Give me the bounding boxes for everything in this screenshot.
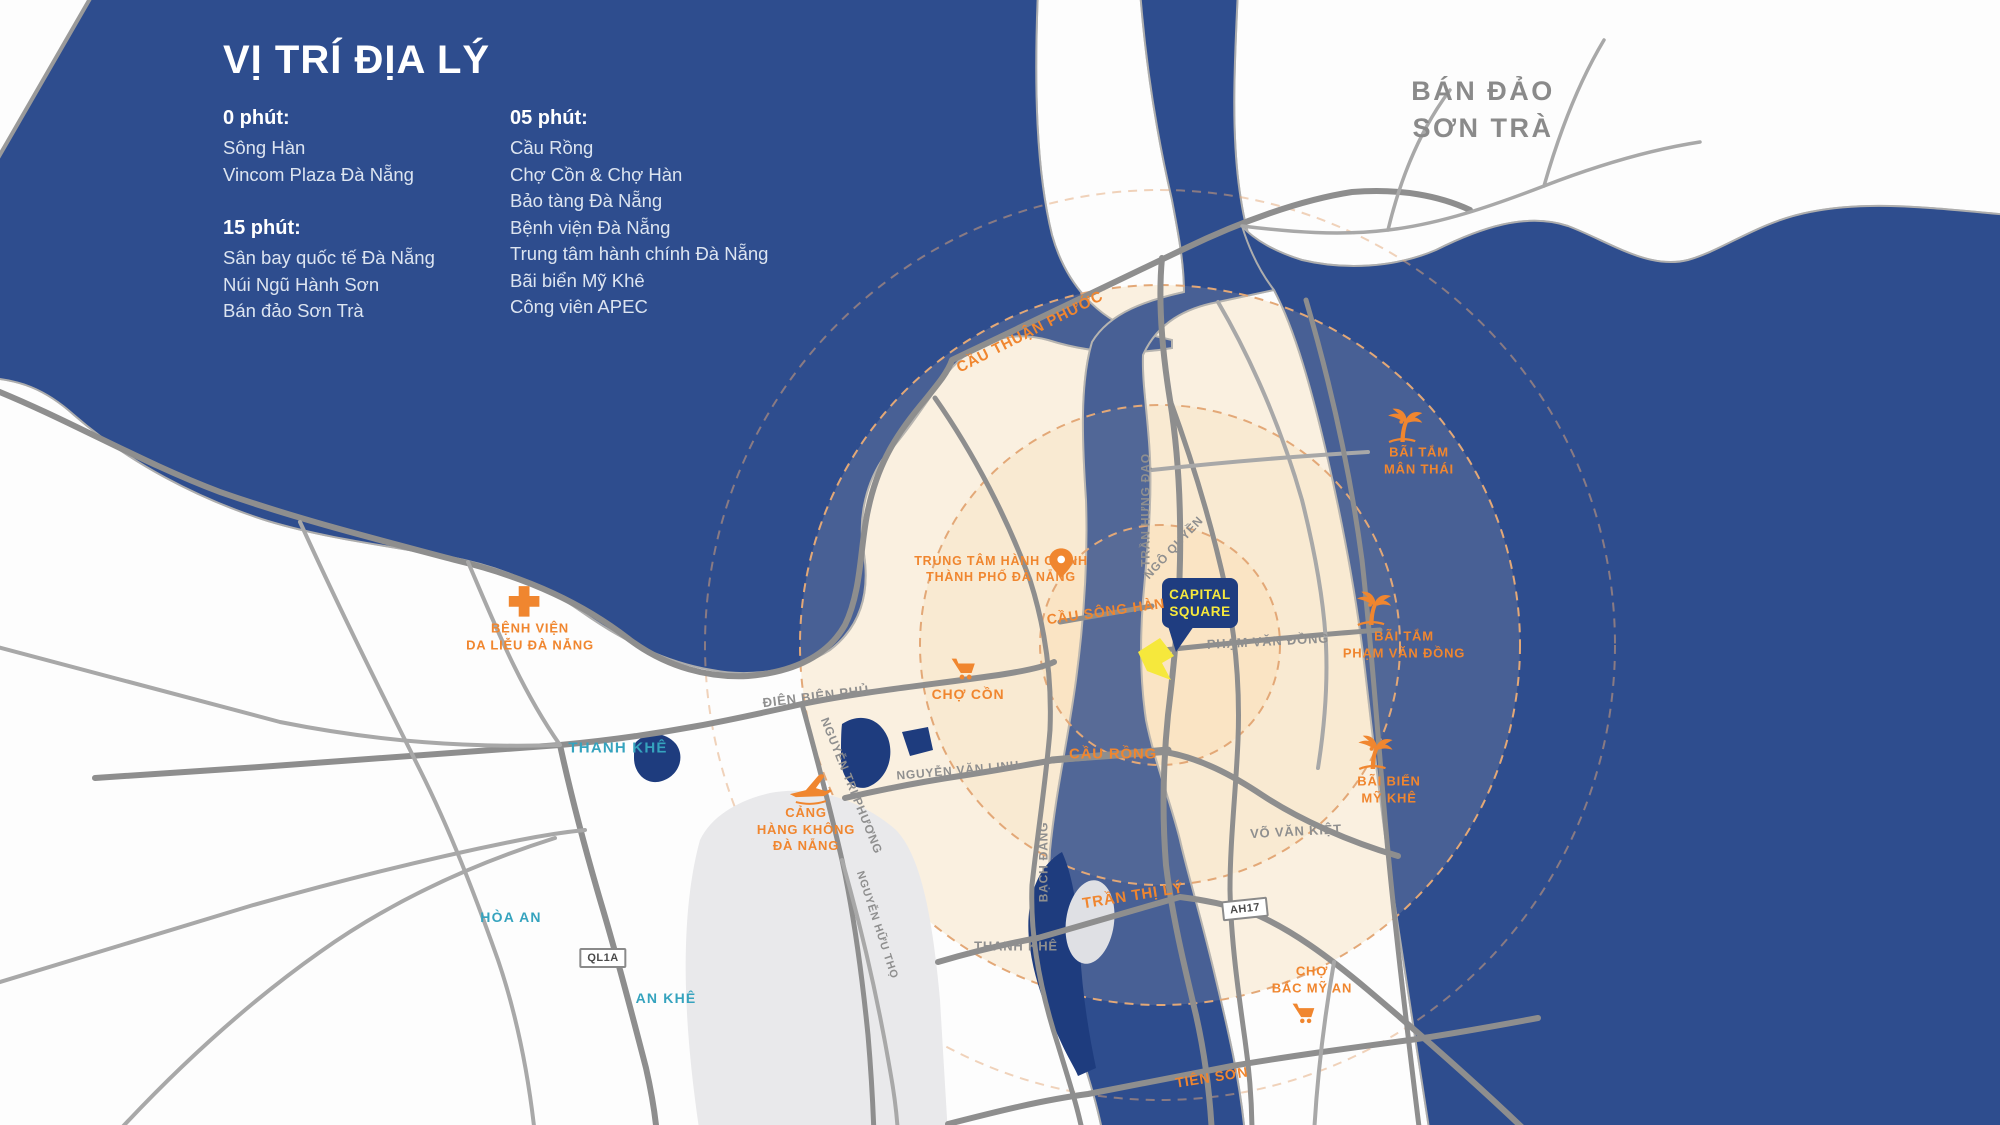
thanh-khe-south-label: THANH KHÊ — [974, 939, 1058, 956]
cart-icon — [948, 653, 980, 685]
info-column: 05 phút:Cầu RồngChợ Cồn & Chợ HànBảo tàn… — [510, 105, 840, 352]
info-group-heading: 05 phút: — [510, 105, 840, 132]
cho-con-label: CHỢ CỒN — [932, 686, 1005, 704]
info-item: Bảo tàng Đà Nẵng — [510, 188, 840, 215]
son-tra-peninsula-label: BÁN ĐẢO SƠN TRÀ — [1411, 73, 1555, 147]
info-columns: 0 phút:Sông HànVincom Plaza Đà Nẵng15 ph… — [223, 105, 823, 352]
info-item: Chợ Cồn & Chợ Hàn — [510, 162, 840, 189]
info-item: Bán đảo Sơn Trà — [223, 298, 478, 325]
hoa-an-label: HÒA AN — [480, 909, 541, 927]
info-item: Núi Ngũ Hành Sơn — [223, 272, 478, 299]
thanh-khe-west-label: THANH KHÊ — [568, 738, 667, 757]
plane-icon — [786, 764, 834, 812]
bai-tam-man-thai-label: BÃI TẮM MÂN THÁI — [1384, 444, 1454, 477]
info-group: 05 phút:Cầu RồngChợ Cồn & Chợ HànBảo tàn… — [510, 105, 840, 321]
info-item: Công viên APEC — [510, 294, 840, 321]
bai-bien-my-khe-label: BÃI BIỂN MỸ KHÊ — [1357, 773, 1420, 806]
location-map-page: VỊ TRÍ ĐỊA LÝ 0 phút:Sông HànVincom Plaz… — [0, 0, 2000, 1125]
palm-icon — [1351, 587, 1393, 629]
info-item: Sông Hàn — [223, 135, 478, 162]
info-group-heading: 0 phút: — [223, 105, 478, 132]
info-item: Sân bay quốc tế Đà Nẵng — [223, 245, 478, 272]
bach-dang-road-label: BẠCH ĐẰNG — [1036, 822, 1051, 903]
an-khe-label: AN KHÊ — [636, 990, 697, 1008]
palm-icon — [1352, 731, 1394, 773]
bai-tam-pham-van-dong-label: BÃI TẮM PHẠM VĂN ĐỒNG — [1343, 628, 1465, 661]
capital-square-marker: CAPITAL SQUARE — [1162, 578, 1238, 628]
info-item: Trung tâm hành chính Đà Nẵng — [510, 241, 840, 268]
info-item: Bãi biển Mỹ Khê — [510, 268, 840, 295]
admin-center-label: TRUNG TÂM HÀNH CHÍNH THÀNH PHỐ ĐÀ NẴNG — [914, 553, 1088, 585]
cho-bac-my-an-label: CHỢ BẮC MỸ AN — [1272, 963, 1352, 996]
info-group-heading: 15 phút: — [223, 215, 478, 242]
page-title: VỊ TRÍ ĐỊA LÝ — [223, 38, 823, 83]
project-name-line2: SQUARE — [1169, 603, 1230, 620]
project-name-line1: CAPITAL — [1169, 586, 1231, 603]
pin-icon — [1044, 545, 1078, 579]
info-item: Bệnh viện Đà Nẵng — [510, 215, 840, 242]
info-group: 0 phút:Sông HànVincom Plaza Đà Nẵng — [223, 105, 478, 188]
location-info-panel: VỊ TRÍ ĐỊA LÝ 0 phút:Sông HànVincom Plaz… — [223, 38, 823, 352]
benh-vien-da-lieu-label: BỆNH VIỆN DA LIỄU ĐÀ NẴNG — [466, 620, 594, 653]
palm-icon — [1382, 404, 1424, 446]
route-badge-ql1a: QL1A — [579, 948, 626, 968]
cart-icon — [1289, 998, 1319, 1028]
cross-icon — [506, 583, 542, 619]
info-item: Vincom Plaza Đà Nẵng — [223, 162, 478, 189]
tran-hung-dao-road-label: TRẦN HƯNG ĐẠO — [1138, 453, 1153, 567]
cau-rong-label: CẦU RỒNG — [1069, 744, 1157, 763]
info-group: 15 phút:Sân bay quốc tế Đà NẵngNúi Ngũ H… — [223, 215, 478, 325]
info-column: 0 phút:Sông HànVincom Plaza Đà Nẵng15 ph… — [223, 105, 478, 352]
info-item: Cầu Rồng — [510, 135, 840, 162]
cang-hang-khong-label: CẢNG HÀNG KHÔNG ĐÀ NẴNG — [757, 805, 855, 855]
